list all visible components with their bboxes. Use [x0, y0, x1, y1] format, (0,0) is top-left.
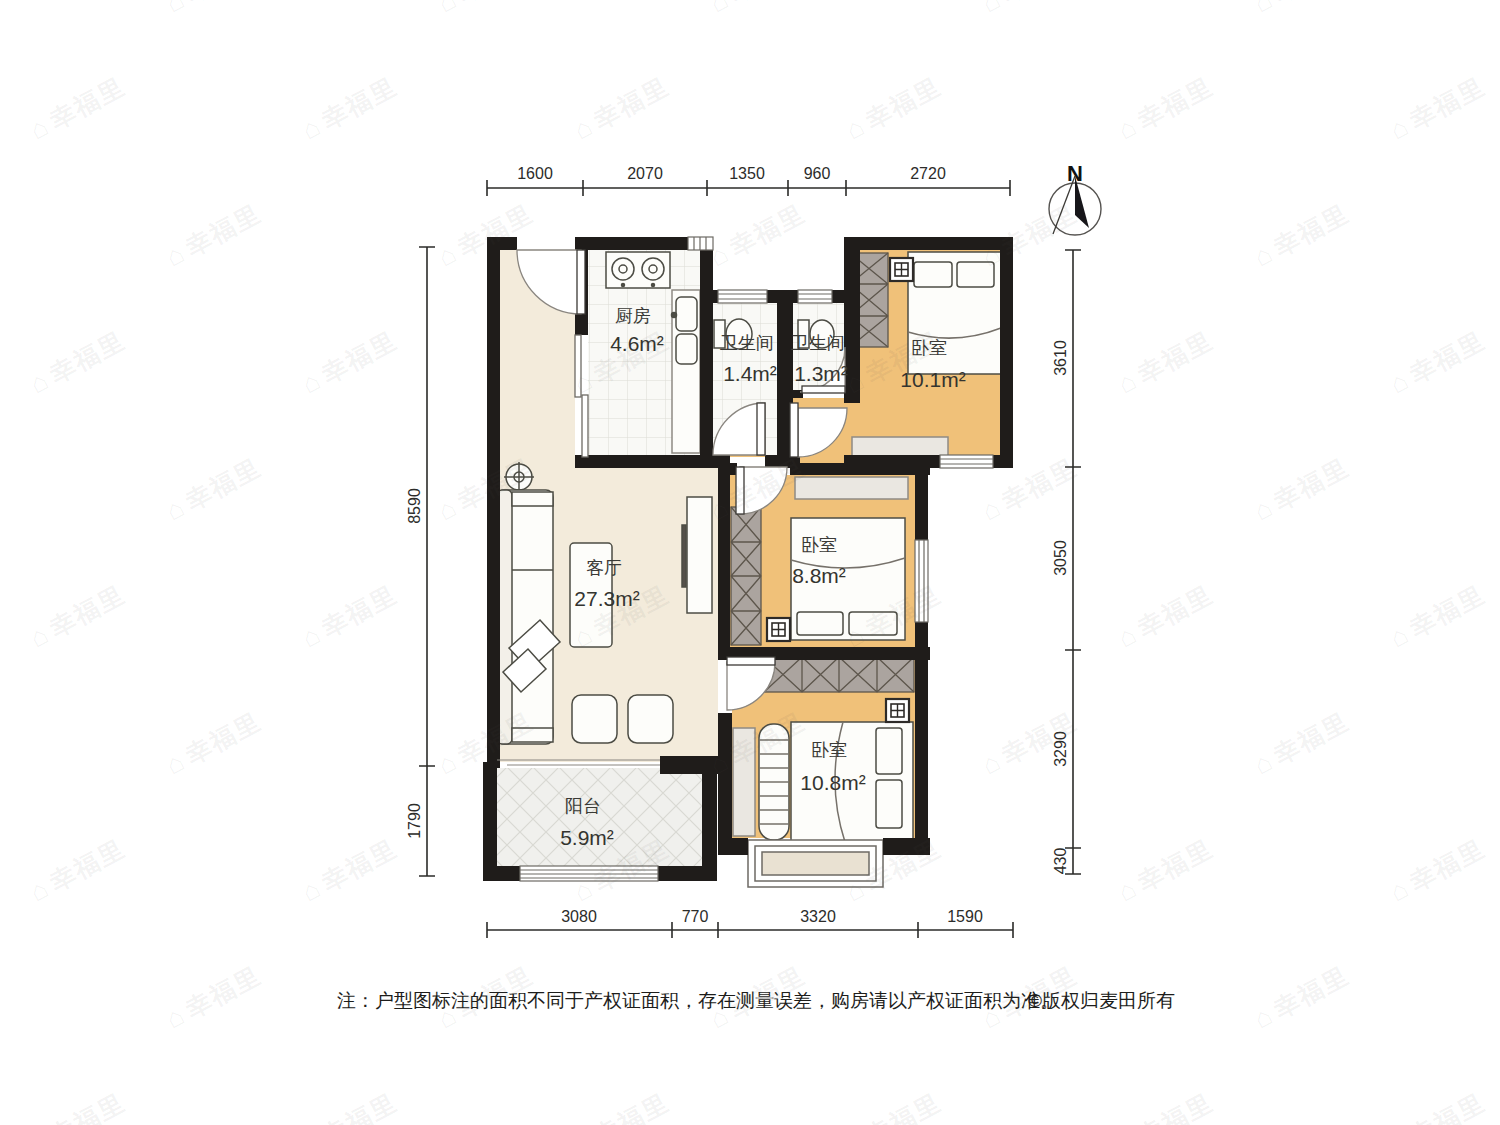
disclaimer-note: 注：户型图标注的面积不同于产权证面积，存在测量误差，购房请以产权证面积为准。	[337, 990, 1059, 1011]
bay-window	[748, 840, 883, 887]
dim-bottom-3: 3320	[800, 908, 836, 925]
dim-right-3: 3290	[1052, 731, 1069, 767]
desk	[733, 728, 755, 836]
kitchen-sink	[672, 290, 701, 453]
window	[688, 237, 713, 250]
room-area: 5.9m²	[560, 826, 614, 849]
drawer-chest	[759, 724, 789, 840]
floorplan-canvas: 厨房 4.6m² 卫生间 1.4m² 卫生间 1.3m² 卧室 10.1m² 客…	[0, 0, 1500, 1125]
balcony-railing	[520, 866, 658, 881]
dim-bottom-2: 770	[682, 908, 709, 925]
dim-top-5: 2720	[910, 165, 946, 182]
room-name: 阳台	[565, 796, 601, 816]
room-area: 4.6m²	[610, 332, 664, 355]
room-area: 27.3m²	[574, 587, 639, 610]
room-area: 1.3m²	[794, 362, 848, 385]
ac-unit-icon	[767, 618, 790, 641]
room-area: 10.8m²	[800, 771, 865, 794]
room-name: 卫生间	[720, 333, 774, 353]
room-name: 客厅	[586, 558, 622, 578]
dim-top-1: 1600	[517, 165, 553, 182]
dim-left-1: 8590	[406, 488, 423, 524]
stool	[572, 695, 617, 743]
dim-top-3: 1350	[729, 165, 765, 182]
dim-right-4: 430	[1052, 848, 1069, 875]
cabinet	[795, 477, 908, 499]
dim-bottom-4: 1590	[947, 908, 983, 925]
dim-top-4: 960	[804, 165, 831, 182]
dim-bottom-1: 3080	[561, 908, 597, 925]
dim-right-1: 3610	[1052, 340, 1069, 376]
dim-top-2: 2070	[627, 165, 663, 182]
stove	[606, 252, 670, 288]
wardrobe	[764, 657, 914, 692]
sliding-door	[575, 335, 588, 457]
ac-unit-icon	[890, 258, 913, 281]
stool	[628, 695, 673, 743]
copyright-note: ©版权归麦田所有	[1028, 990, 1175, 1011]
window	[940, 455, 993, 468]
room-name: 卧室	[801, 535, 837, 555]
wardrobe	[731, 507, 761, 645]
room-area: 10.1m²	[900, 368, 965, 391]
floorplan-page: 厨房 4.6m² 卫生间 1.4m² 卫生间 1.3m² 卧室 10.1m² 客…	[0, 0, 1500, 1125]
sofa	[497, 490, 560, 744]
dim-right-2: 3050	[1052, 540, 1069, 576]
room-area: 8.8m²	[792, 564, 846, 587]
room-name: 卧室	[911, 338, 947, 358]
dim-left-2: 1790	[406, 803, 423, 839]
window	[915, 540, 928, 622]
balcony-floor	[497, 768, 702, 866]
window	[718, 290, 767, 303]
room-area: 1.4m²	[723, 362, 777, 385]
ac-unit-icon	[886, 699, 909, 722]
room-name: 厨房	[615, 306, 651, 326]
tv-stand	[682, 497, 712, 613]
north-compass-icon: N	[1049, 161, 1101, 235]
window	[798, 290, 832, 303]
room-name: 卧室	[811, 740, 847, 760]
room-name: 卫生间	[791, 333, 845, 353]
